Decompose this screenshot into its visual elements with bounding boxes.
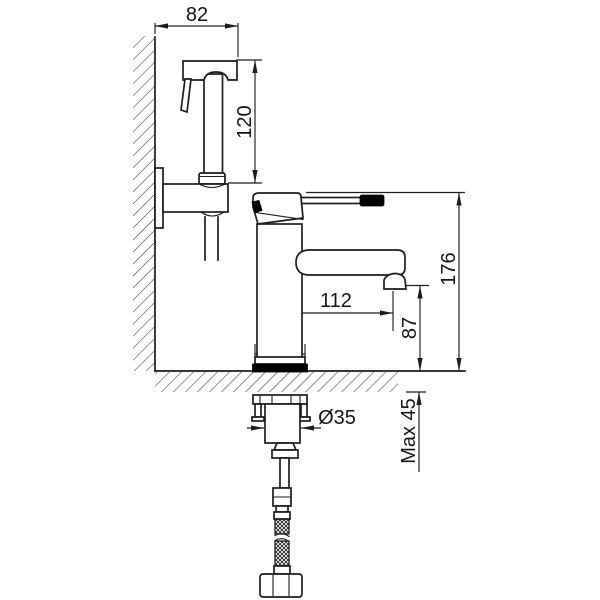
dimension-dia35-label: Ø35 xyxy=(318,407,356,429)
hose-ferrule-top xyxy=(274,512,290,519)
base-gasket xyxy=(253,364,308,372)
supply-hose xyxy=(260,458,302,597)
bracket-holder-body xyxy=(163,184,228,212)
dimension-112-label: 112 xyxy=(320,290,352,312)
handle-lever-rod xyxy=(300,198,361,204)
braided-hose-upper xyxy=(275,519,289,534)
dimension-max45: Max 45 xyxy=(398,392,426,472)
dimension-87-label: 87 xyxy=(399,317,421,339)
bracket-wall-plate xyxy=(155,168,163,228)
hose-adapter-neck xyxy=(274,443,296,450)
dimension-87: 87 xyxy=(399,286,429,372)
dimension-176-label: 176 xyxy=(438,252,460,285)
hose-top-tube xyxy=(280,458,289,488)
wall-hatch xyxy=(133,36,155,371)
sprayer-collar xyxy=(199,173,225,184)
adapter-hex xyxy=(272,450,298,458)
hose-ferrule-bottom xyxy=(274,566,290,574)
dimension-82: 82 xyxy=(155,4,238,57)
dimension-120-label: 120 xyxy=(234,105,256,138)
mounting-stud-right xyxy=(301,404,307,417)
countertop-section xyxy=(155,371,465,392)
countertop-hatch xyxy=(155,372,398,392)
mounting-hardware xyxy=(252,395,310,458)
braided-hose-lower xyxy=(275,541,289,566)
mounting-stud-left xyxy=(255,404,261,417)
dimension-max45-label: Max 45 xyxy=(398,398,420,464)
spout-aerator xyxy=(384,274,406,290)
wall-section xyxy=(133,36,155,371)
mounting-washer-plate xyxy=(253,395,307,404)
hose-ring xyxy=(276,506,288,512)
handle-grip-tip xyxy=(360,195,384,206)
base-flange xyxy=(255,357,305,364)
technical-drawing-canvas: 82 120 176 112 87 Ø50 Ø35 Max 45 xyxy=(0,0,600,600)
faucet-dimension-diagram: 82 120 176 112 87 Ø50 Ø35 Max 45 xyxy=(0,0,600,600)
faucet-handle xyxy=(300,195,384,206)
hand-sprayer xyxy=(181,61,237,184)
faucet-body-column xyxy=(257,224,302,358)
sprayer-trigger-lever xyxy=(181,79,191,112)
sprayer-handle-tube xyxy=(204,74,223,175)
basin-mixer-faucet xyxy=(252,193,406,372)
stud-foot-left xyxy=(252,417,264,421)
faucet-spout xyxy=(296,250,405,275)
threaded-shank xyxy=(265,404,300,443)
faucet-cartridge-head xyxy=(252,193,303,224)
dimension-82-label: 82 xyxy=(186,4,208,26)
hose-end-nut xyxy=(260,574,302,597)
